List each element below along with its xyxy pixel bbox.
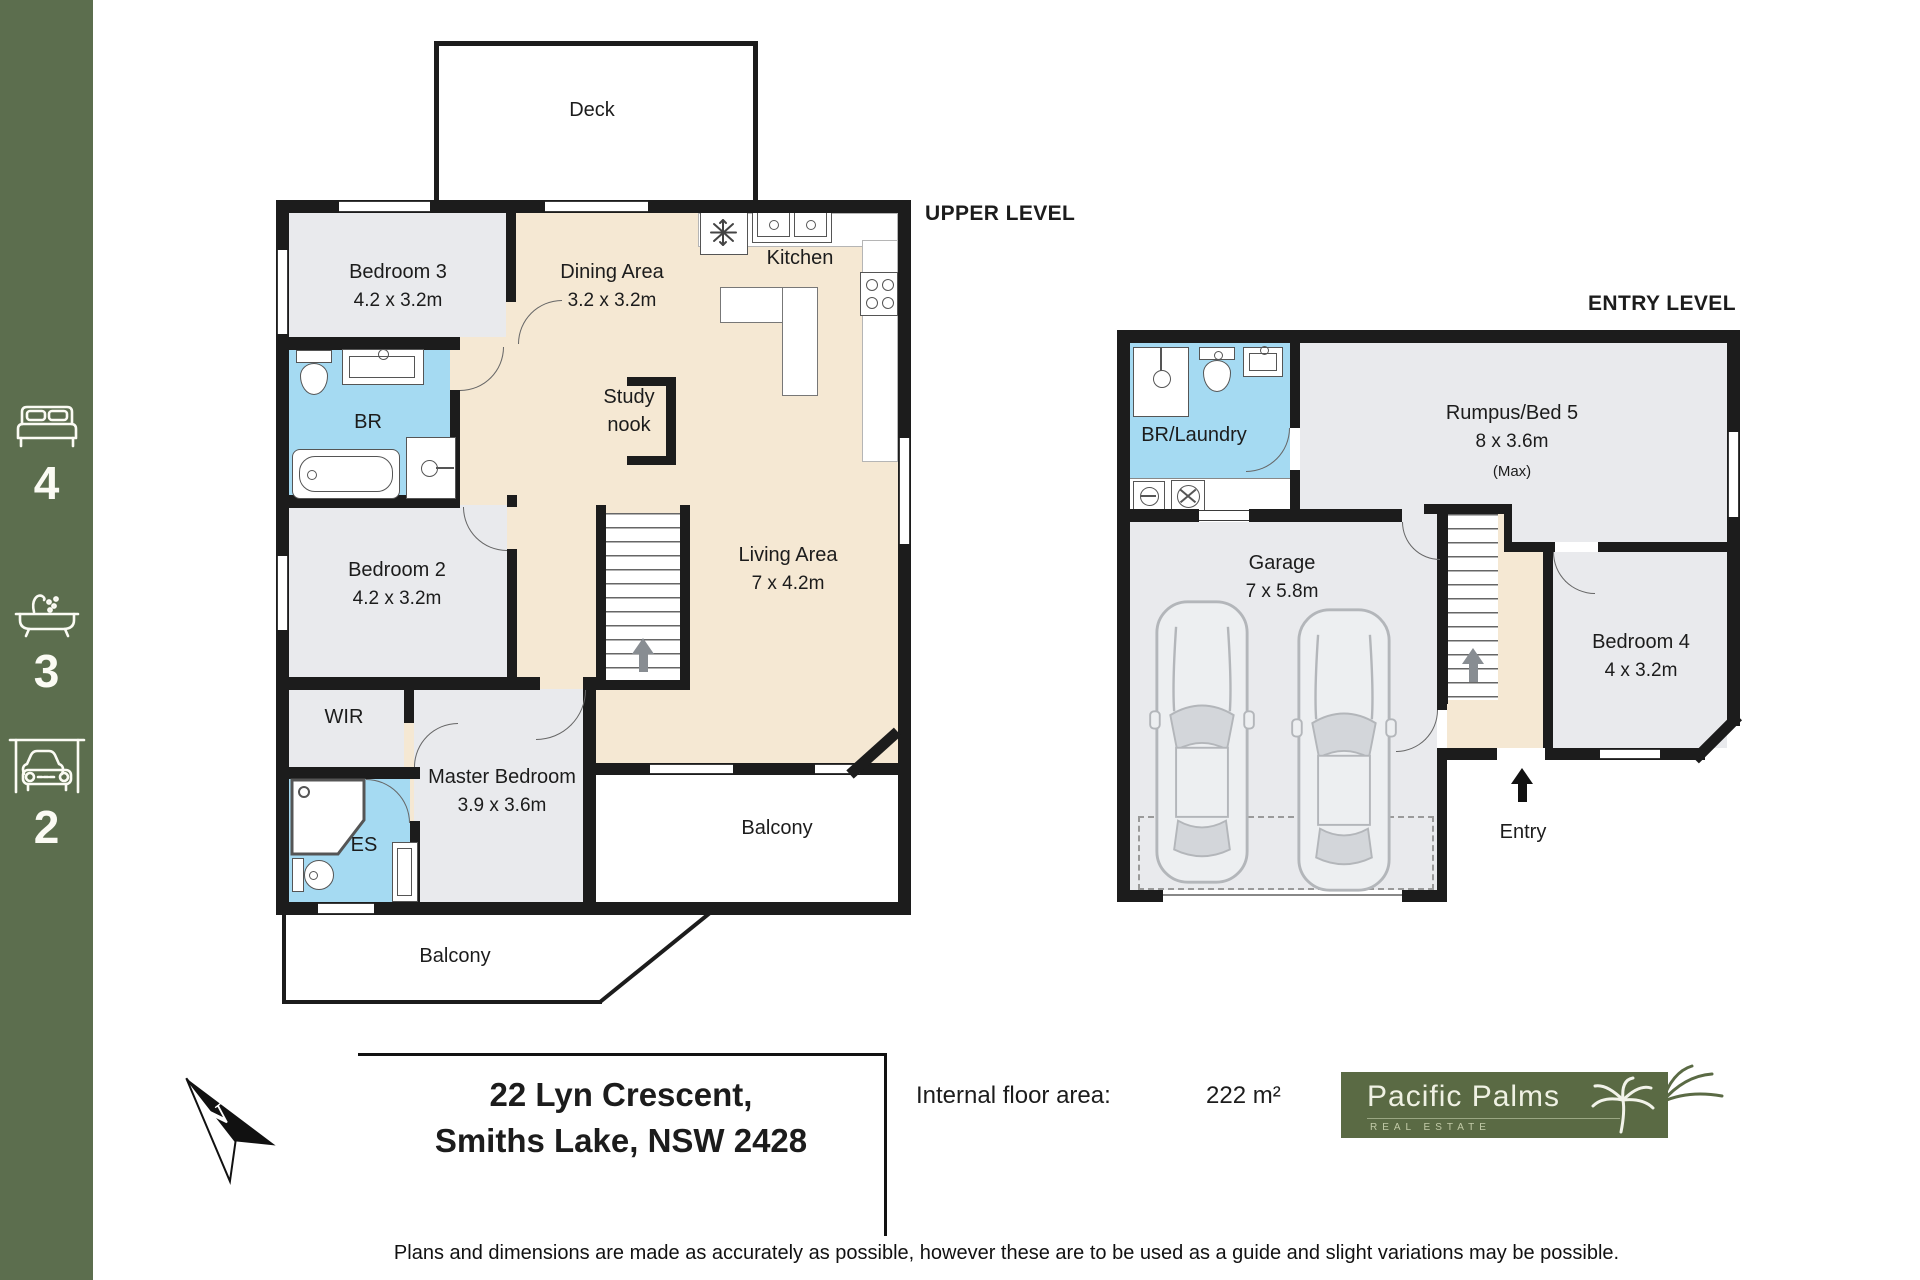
agency-logo: Pacific Palms REAL ESTATE (1341, 1072, 1668, 1138)
stairs-entry-up-arrow (1461, 648, 1485, 682)
car-icon-1 (1148, 598, 1256, 886)
room-label-balcony-bottom: Balcony (419, 942, 490, 970)
room-label-bedroom2: Bedroom 24.2 x 3.2m (348, 556, 446, 613)
shower-icon-laundry (1133, 347, 1189, 417)
room-label-bedroom4: Bedroom 44 x 3.2m (1592, 628, 1690, 685)
room-label-living: Living Area7 x 4.2m (739, 541, 838, 598)
car-icon-2 (1290, 606, 1398, 894)
footer-divider-vertical (884, 1053, 887, 1236)
palm-icon (1581, 1076, 1667, 1136)
bedrooms-stat: 4 (0, 400, 93, 506)
toilet-tank-laundry (1199, 347, 1235, 360)
palm-frond-accent (1658, 1062, 1728, 1108)
car-icon (0, 732, 93, 798)
room-label-entry: Entry (1500, 818, 1547, 846)
room-label-br-laundry: BR/Laundry (1141, 421, 1247, 449)
north-arrow-icon: N (165, 1062, 280, 1187)
room-label-es: ES (351, 831, 378, 859)
kitchen-island-leg (782, 288, 818, 396)
room-label-kitchen: Kitchen (767, 244, 834, 272)
upper-level-title: UPPER LEVEL (925, 202, 1075, 226)
room-label-dining: Dining Area3.2 x 3.2m (560, 258, 663, 315)
sidebar: 4 3 (0, 0, 93, 1280)
sink-icon-laundry (1243, 347, 1283, 377)
vanity-icon-es (392, 842, 418, 902)
toilet-tank-br (296, 350, 332, 363)
bathrooms-stat: 3 (0, 586, 93, 694)
room-label-bedroom3: Bedroom 34.2 x 3.2m (349, 258, 447, 315)
bathrooms-count: 3 (0, 648, 93, 694)
floorplan-page: 4 3 (0, 0, 1920, 1280)
vanity-icon-br (342, 349, 424, 385)
room-label-deck: Deck (569, 96, 615, 124)
bed-icon (0, 400, 93, 454)
cooktop-icon (860, 272, 898, 316)
room-label-br: BR (354, 408, 382, 436)
entry-arrow (1510, 768, 1534, 802)
floor-area-label: Internal floor area: (916, 1082, 1111, 1110)
toilet-icon-es (304, 860, 334, 890)
room-label-study-nook: Studynook (603, 383, 654, 440)
bath-icon (0, 586, 93, 642)
fridge-icon (700, 211, 748, 255)
entry-level-title: ENTRY LEVEL (1588, 292, 1736, 316)
room-label-balcony-side: Balcony (741, 814, 812, 842)
room-label-wir: WIR (325, 703, 364, 731)
stairs-up-arrow (631, 638, 655, 672)
footer-divider-horizontal (358, 1053, 884, 1056)
room-label-garage: Garage7 x 5.8m (1246, 549, 1319, 606)
bedrooms-count: 4 (0, 460, 93, 506)
toilet-tank-es (292, 858, 304, 892)
bathtub-icon (292, 449, 400, 499)
cars-stat: 2 (0, 732, 93, 850)
shower-icon-br (406, 437, 456, 499)
cars-count: 2 (0, 804, 93, 850)
room-label-master: Master Bedroom3.9 x 3.6m (428, 763, 576, 820)
washer-icon (1133, 481, 1165, 512)
disclaimer-text: Plans and dimensions are made as accurat… (93, 1242, 1920, 1265)
property-address: 22 Lyn Crescent, Smiths Lake, NSW 2428 (358, 1072, 884, 1163)
agency-logo-tagline: REAL ESTATE (1370, 1122, 1491, 1133)
room-label-rumpus: Rumpus/Bed 58 x 3.6m(Max) (1446, 399, 1578, 485)
floor-area-value: 222 m² (1206, 1082, 1281, 1110)
